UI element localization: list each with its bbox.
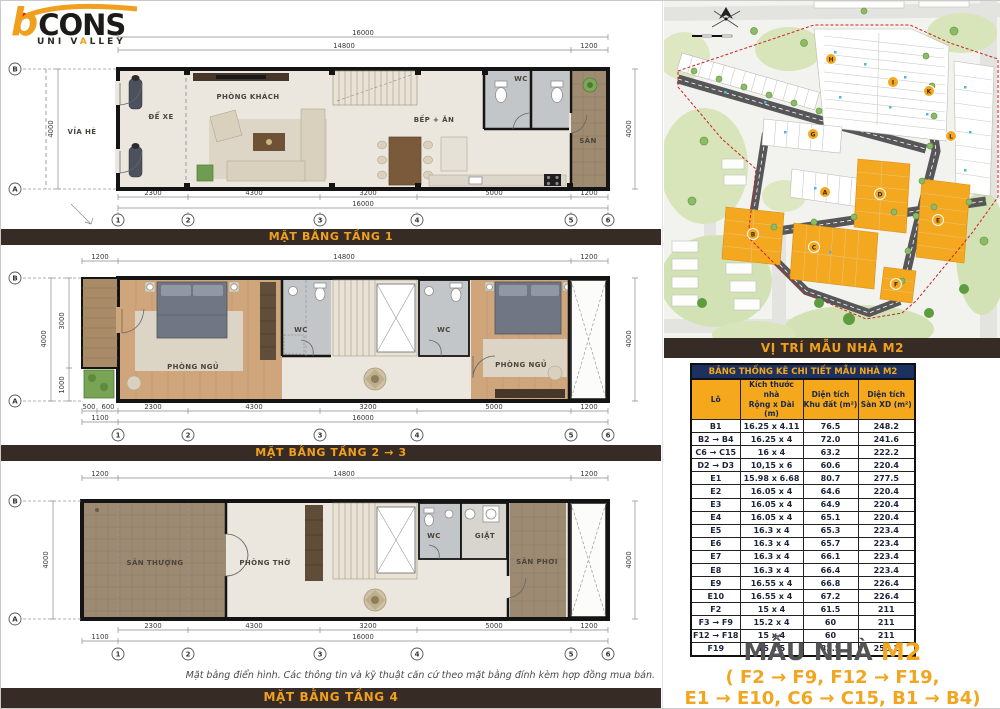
svg-text:1200: 1200 <box>91 253 108 261</box>
table-row: E3 16.05 x 4 64.9 220.4 <box>691 498 915 511</box>
cell-land-area: 60 <box>803 616 858 629</box>
room-label-yard: SÂN <box>579 136 597 145</box>
room-label-wc: WC <box>427 532 441 540</box>
svg-text:6: 6 <box>606 651 611 659</box>
svg-text:1200: 1200 <box>91 470 108 478</box>
cell-land-area: 80.7 <box>803 472 858 485</box>
cell-land-area: 65.7 <box>803 537 858 550</box>
cell-floor-area: 211 <box>858 616 915 629</box>
svg-text:600: 600 <box>102 403 115 411</box>
svg-text:4: 4 <box>415 217 420 225</box>
cell-size: 16 x 4 <box>740 446 803 459</box>
col-header-lot: Lô <box>691 379 740 420</box>
room-label-laundry: GIẶT <box>475 531 495 540</box>
room-label-terrace: SÂN THƯỢNG <box>127 558 184 567</box>
svg-text:1200: 1200 <box>580 253 597 261</box>
cell-lot: B2 → B4 <box>691 433 740 446</box>
cell-floor-area: 220.4 <box>858 498 915 511</box>
floor1-titlebar: MẶT BẰNG TẦNG 1 <box>1 229 661 245</box>
floor4-titlebar: MẶT BẰNG TẦNG 4 <box>1 688 661 708</box>
table-body: B1 16.25 x 4.11 76.5 248.2 B2 → B4 16.25… <box>691 420 915 656</box>
cell-lot: E2 <box>691 485 740 498</box>
room-label-bed1: PHÒNG NGỦ <box>167 361 219 371</box>
room-label-wc: WC <box>514 75 528 83</box>
svg-text:1100: 1100 <box>91 633 108 641</box>
svg-text:F: F <box>894 282 898 289</box>
cell-size: 16.55 x 4 <box>740 577 803 590</box>
cell-land-area: 76.5 <box>803 420 858 433</box>
cell-lot: E10 <box>691 590 740 603</box>
svg-text:3200: 3200 <box>359 403 376 411</box>
cell-size: 16.3 x 4 <box>740 564 803 577</box>
floor2-titlebar: MẶT BẰNG TẦNG 2 → 3 <box>1 445 661 461</box>
cell-floor-area: 223.4 <box>858 524 915 537</box>
svg-text:G: G <box>811 132 816 139</box>
svg-text:D: D <box>878 192 883 199</box>
svg-text:5: 5 <box>569 432 574 440</box>
cell-lot: E8 <box>691 564 740 577</box>
svg-text:4000: 4000 <box>625 551 633 568</box>
svg-text:B: B <box>12 498 17 506</box>
wc1-room <box>282 280 331 356</box>
col-header-land-area: Diện tíchKhu đất (m²) <box>803 379 858 420</box>
svg-text:1200: 1200 <box>580 622 597 630</box>
cell-lot: B1 <box>691 420 740 433</box>
dim-label: 16000 <box>352 200 374 208</box>
svg-text:3: 3 <box>318 217 323 225</box>
cell-floor-area: 220.4 <box>858 459 915 472</box>
cell-size: 16.05 x 4 <box>740 511 803 524</box>
svg-text:3: 3 <box>318 432 323 440</box>
svg-text:16000: 16000 <box>352 414 374 422</box>
table-row: E2 16.05 x 4 64.6 220.4 <box>691 485 915 498</box>
col-header-floor-area: Diện tíchSàn XD (m²) <box>858 379 915 420</box>
table-row: E5 16.3 x 4 65.3 223.4 <box>691 524 915 537</box>
void-skylight <box>569 280 606 399</box>
model-lots-line2: E1 → E10, C6 → C15, B1 → B4) <box>664 688 1000 709</box>
svg-text:E: E <box>936 218 940 225</box>
table-row: B2 → B4 16.25 x 4 72.0 241.6 <box>691 433 915 446</box>
svg-text:6: 6 <box>606 217 611 225</box>
cell-size: 16.55 x 4 <box>740 590 803 603</box>
svg-text:16000: 16000 <box>352 633 374 641</box>
cell-size: 16.25 x 4.11 <box>740 420 803 433</box>
laundry-room <box>461 503 507 559</box>
svg-text:3: 3 <box>318 651 323 659</box>
floor1-building: VỈA HÈ <box>46 67 608 191</box>
cell-size: 10,15 x 6 <box>740 459 803 472</box>
svg-text:14800: 14800 <box>333 253 355 261</box>
room-label-drying: SÂN PHƠI <box>516 557 558 566</box>
svg-text:4: 4 <box>415 651 420 659</box>
cell-land-area: 66.1 <box>803 550 858 563</box>
cell-land-area: 64.9 <box>803 498 858 511</box>
cell-land-area: 66.8 <box>803 577 858 590</box>
yard <box>571 71 606 187</box>
table-row: F3 → F9 15.2 x 4 60 211 <box>691 616 915 629</box>
cell-land-area: 64.6 <box>803 485 858 498</box>
cell-floor-area: 241.6 <box>858 433 915 446</box>
cell-size: 16.25 x 4 <box>740 433 803 446</box>
model-summary: MẪU NHÀ M2 ( F2 → F9, F12 → F19, E1 → E1… <box>664 639 1000 709</box>
cell-land-area: 65.3 <box>803 524 858 537</box>
svg-text:B: B <box>751 232 756 239</box>
room-label-kitchen: BẾP + ĂN <box>414 114 454 124</box>
svg-text:1000: 1000 <box>58 376 66 393</box>
cell-floor-area: 277.5 <box>858 472 915 485</box>
svg-text:L: L <box>949 134 953 141</box>
cell-floor-area: 211 <box>858 603 915 616</box>
svg-text:4000: 4000 <box>42 551 50 568</box>
floor2-building: PHÒNG NGỦ WC WC PHÒNG NGỦ <box>82 278 608 401</box>
svg-text:5000: 5000 <box>485 622 502 630</box>
cell-floor-area: 222.2 <box>858 446 915 459</box>
svg-text:2300: 2300 <box>144 403 161 411</box>
room-label-bed2: PHÒNG NGỦ <box>495 359 547 369</box>
wc-room <box>419 503 461 559</box>
svg-text:2300: 2300 <box>144 622 161 630</box>
svg-text:K: K <box>927 89 932 96</box>
bedroom2 <box>471 280 572 399</box>
cell-floor-area: 223.4 <box>858 537 915 550</box>
void-skylight <box>569 503 606 617</box>
svg-text:1: 1 <box>116 432 121 440</box>
bedroom1 <box>116 280 282 399</box>
cell-floor-area: 223.4 <box>858 550 915 563</box>
svg-text:14800: 14800 <box>333 470 355 478</box>
site-map: H I K L G A D B C E F <box>664 1 1000 338</box>
svg-text:6: 6 <box>606 432 611 440</box>
svg-text:4: 4 <box>415 432 420 440</box>
cell-size: 15.2 x 4 <box>740 616 803 629</box>
svg-text:4300: 4300 <box>245 403 262 411</box>
svg-text:4000: 4000 <box>625 330 633 347</box>
cell-land-area: 66.4 <box>803 564 858 577</box>
model-title: MẪU NHÀ M2 <box>664 639 1000 667</box>
lot-statistics-table: BẢNG THỐNG KÊ CHI TIẾT MẪU NHÀ M2 Lô Kíc… <box>690 363 916 657</box>
cell-lot: E9 <box>691 577 740 590</box>
cell-lot: E3 <box>691 498 740 511</box>
room-label-living: PHÒNG KHÁCH <box>216 92 279 101</box>
svg-text:3200: 3200 <box>359 622 376 630</box>
svg-text:B: B <box>12 275 17 283</box>
cell-size: 16.05 x 4 <box>740 498 803 511</box>
svg-text:A: A <box>12 186 18 194</box>
svg-text:5: 5 <box>569 651 574 659</box>
table-row: F2 15 x 4 61.5 211 <box>691 603 915 616</box>
cell-floor-area: 248.2 <box>858 420 915 433</box>
svg-text:1200: 1200 <box>580 470 597 478</box>
cell-lot: E5 <box>691 524 740 537</box>
model-lots-line1: ( F2 → F9, F12 → F19, <box>664 667 1000 688</box>
cell-land-area: 65.1 <box>803 511 858 524</box>
scale-bar <box>692 35 732 37</box>
room-label-sidewalk: VỈA HÈ <box>68 126 97 136</box>
cell-size: 15 x 4 <box>740 603 803 616</box>
svg-text:2: 2 <box>186 217 191 225</box>
svg-text:500: 500 <box>83 403 96 411</box>
cell-size: 16.05 x 4 <box>740 485 803 498</box>
table-row: E7 16.3 x 4 66.1 223.4 <box>691 550 915 563</box>
cell-lot: E1 <box>691 472 740 485</box>
room-label-worship: PHÒNG THỜ <box>239 558 290 567</box>
cell-lot: C6 → C15 <box>691 446 740 459</box>
dim-label: 14800 <box>333 42 355 50</box>
worship-room <box>305 505 323 581</box>
room-label-wc2: WC <box>437 326 451 334</box>
cell-floor-area: 226.4 <box>858 577 915 590</box>
cell-floor-area: 220.4 <box>858 485 915 498</box>
cell-size: 16.3 x 4 <box>740 550 803 563</box>
cell-land-area: 63.2 <box>803 446 858 459</box>
cell-lot: E6 <box>691 537 740 550</box>
column-divider <box>662 1 663 708</box>
disclaimer-note: Mặt bằng điển hình. Các thông tin và kỹ … <box>1 670 655 681</box>
dim-label: 4000 <box>47 120 55 137</box>
cell-size: 16.3 x 4 <box>740 524 803 537</box>
map-titlebar: VỊ TRÍ MẪU NHÀ M2 <box>664 338 1000 358</box>
room-label-wc1: WC <box>294 326 308 334</box>
cell-land-area: 67.2 <box>803 590 858 603</box>
floor4-building: SÂN THƯỢNG PHÒNG THỜ WC GIẶT SÂN PHƠI <box>82 501 608 619</box>
table-row: E10 16.55 x 4 67.2 226.4 <box>691 590 915 603</box>
svg-text:2: 2 <box>186 651 191 659</box>
svg-text:I: I <box>892 80 894 87</box>
svg-text:1: 1 <box>116 217 121 225</box>
svg-text:A: A <box>12 616 18 624</box>
cell-floor-area: 226.4 <box>858 590 915 603</box>
balcony <box>82 278 118 398</box>
svg-text:B: B <box>12 66 17 74</box>
table-row: E4 16.05 x 4 65.1 220.4 <box>691 511 915 524</box>
table-row: D2 → D3 10,15 x 6 60.6 220.4 <box>691 459 915 472</box>
svg-text:C: C <box>812 245 817 252</box>
svg-text:2: 2 <box>186 432 191 440</box>
floor1-plan: 16000 14800 1200 2300 4300 3200 5000 120… <box>1 29 661 229</box>
floor4-plan: 1200 14800 1200 2300 4300 3200 5000 1200… <box>1 464 661 669</box>
svg-text:5: 5 <box>569 217 574 225</box>
svg-text:4300: 4300 <box>245 622 262 630</box>
cell-lot: E4 <box>691 511 740 524</box>
table-row: E1 15.98 x 6.68 80.7 277.5 <box>691 472 915 485</box>
dim-label: 1200 <box>580 42 597 50</box>
table-row: B1 16.25 x 4.11 76.5 248.2 <box>691 420 915 433</box>
cell-lot: D2 → D3 <box>691 459 740 472</box>
svg-text:A: A <box>823 190 828 197</box>
cell-floor-area: 220.4 <box>858 511 915 524</box>
brochure-sheet: bCONS UNI VALLEY 16000 14800 1200 2300 4… <box>0 0 1000 709</box>
cell-size: 15.98 x 6.68 <box>740 472 803 485</box>
svg-text:H: H <box>828 57 833 64</box>
table-row: E8 16.3 x 4 66.4 223.4 <box>691 564 915 577</box>
cell-size: 16.3 x 4 <box>740 537 803 550</box>
table-row: E9 16.55 x 4 66.8 226.4 <box>691 577 915 590</box>
svg-text:4000: 4000 <box>40 330 48 347</box>
model-code: M2 <box>881 638 922 666</box>
cell-floor-area: 223.4 <box>858 564 915 577</box>
wc2-room <box>419 280 469 356</box>
svg-text:3000: 3000 <box>58 312 66 329</box>
cell-land-area: 72.0 <box>803 433 858 446</box>
col-header-size: Kích thước nhàRộng x Dài (m) <box>740 379 803 420</box>
svg-text:A: A <box>12 398 18 406</box>
cell-land-area: 60.6 <box>803 459 858 472</box>
stairs <box>333 71 417 105</box>
table-row: E6 16.3 x 4 65.7 223.4 <box>691 537 915 550</box>
svg-text:1100: 1100 <box>91 414 108 422</box>
table-title: BẢNG THỐNG KÊ CHI TIẾT MẪU NHÀ M2 <box>691 364 915 379</box>
cell-land-area: 61.5 <box>803 603 858 616</box>
svg-text:5000: 5000 <box>485 403 502 411</box>
cell-lot: F2 <box>691 603 740 616</box>
svg-text:1200: 1200 <box>580 403 597 411</box>
dim-label: 4000 <box>625 120 633 137</box>
dim-label: 16000 <box>352 29 374 37</box>
room-label-parking: ĐỂ XE <box>148 111 173 121</box>
floor2-plan: 1200 14800 1200 500 600 2300 4300 3200 5… <box>1 251 661 444</box>
svg-text:1: 1 <box>116 651 121 659</box>
cell-lot: F3 → F9 <box>691 616 740 629</box>
table-row: C6 → C15 16 x 4 63.2 222.2 <box>691 446 915 459</box>
cell-lot: E7 <box>691 550 740 563</box>
